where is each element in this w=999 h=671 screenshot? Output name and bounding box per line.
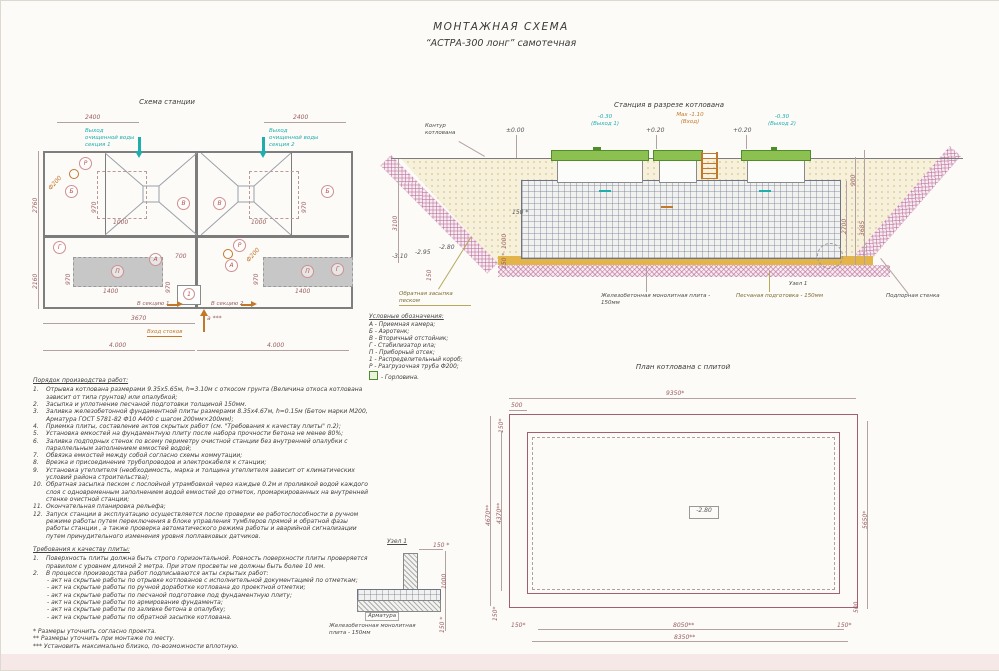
quality-item: 2.В процессе производства работ подписыв… — [33, 570, 369, 577]
item-text: Установка емкостей на фундаментную плиту… — [46, 430, 343, 437]
dim-label: 1400 — [103, 288, 118, 295]
act-item: - акт на скрытые работы по ручной дорабо… — [47, 584, 369, 591]
chamber-label: А — [225, 259, 238, 272]
station-plan-title: Схема станции — [107, 98, 227, 106]
item-text: Запуск станции в эксплуатацию осуществля… — [46, 511, 369, 540]
work-order-item: 8.Врезка и присоединение трубопроводов и… — [33, 459, 369, 466]
dim-line — [509, 410, 527, 411]
dim-label: 970 — [165, 282, 172, 293]
dim-label: 2160 — [32, 274, 39, 289]
dim-label: 3670 — [131, 315, 146, 322]
outlet-label: Выход очищенной воды секция 1 — [85, 128, 137, 149]
work-order-title: Порядок производства работ: — [33, 377, 369, 384]
discharge-pipe-icon — [69, 169, 79, 179]
item-number: 11. — [33, 503, 46, 510]
slab-label: Железобетонная монолитная плита - 150мм — [601, 293, 713, 307]
outlet-pipe-mark — [599, 190, 611, 192]
work-order-item: 6.Заливка подпорных стенок по всему пери… — [33, 438, 369, 453]
item-number: 7. — [33, 452, 46, 459]
chamber-label: Б — [321, 185, 334, 198]
dim-line — [57, 122, 139, 123]
dim-label: 2400 — [293, 114, 308, 121]
item-number: 2. — [33, 401, 46, 408]
dim-label: 970 — [65, 274, 72, 285]
item-number: 3. — [33, 408, 46, 423]
outlet-arrow-head — [259, 151, 267, 158]
item-text: Приемка плиты, составление актов скрытых… — [46, 423, 341, 430]
item-text: Засыпка и уплотнение песчаной подготовки… — [46, 401, 247, 408]
elevation-sublabel: (Вход) — [681, 119, 700, 125]
item-number: 2. — [33, 570, 46, 577]
dim-line — [264, 122, 346, 123]
item-number: 12. — [33, 511, 46, 540]
leader-line — [516, 135, 517, 158]
quality-acts: - акт на скрытые работы по отрывке котло… — [33, 577, 369, 621]
outlet-arrow — [138, 137, 141, 151]
pit-bottom-outline — [532, 437, 835, 590]
footnote: ** Размеры уточнить при монтаже по месту… — [33, 635, 369, 642]
dim-label: 1400 — [295, 288, 310, 295]
node1-callout-label: Узел 1 — [789, 281, 807, 288]
work-order-item: 7.Обвязка емкостей между собой согласно … — [33, 452, 369, 459]
flow-arrow-head — [251, 301, 257, 307]
dim-label: 900 — [850, 175, 857, 186]
to-section-label: В секцию 2 — [211, 301, 243, 308]
dim-label: 4.000 — [267, 342, 284, 349]
inlet-pipe-mark — [661, 206, 673, 208]
outlet-arrow — [262, 137, 265, 151]
footnote: * Размеры уточнить согласно проекта. — [33, 628, 369, 635]
elevation-label: -0.30 — [775, 114, 789, 120]
item-number: 9. — [33, 467, 46, 482]
elevation-label: -2.80 — [439, 244, 455, 251]
dim-label: 150 * — [501, 253, 508, 269]
elevation-label: ±0.00 — [506, 127, 524, 134]
quality-title: Требования к качеству плиты: — [33, 546, 369, 553]
guide-rect — [249, 171, 299, 219]
elevation-label: +0.20 — [646, 127, 664, 134]
station-body — [521, 180, 841, 259]
dim-line — [538, 629, 844, 630]
dim-line — [864, 150, 865, 265]
dim-label: 970 — [91, 202, 98, 213]
chamber-label: Б — [65, 185, 78, 198]
leader-line — [459, 141, 485, 157]
dim-line — [419, 549, 443, 550]
pit-contour-label: Контур котлована — [425, 123, 470, 137]
elevation-sublabel: (Выход 1) — [591, 121, 619, 127]
act-item: - акт на скрытые работы по заливке бетон… — [47, 606, 369, 613]
dim-label: 2700 — [841, 219, 848, 234]
footnotes: * Размеры уточнить согласно проекта. ** … — [33, 628, 369, 650]
riser — [557, 158, 643, 183]
chamber-label: А — [149, 253, 162, 266]
item-number: 6. — [33, 438, 46, 453]
item-text: Поверхность плиты должна быть строго гор… — [46, 555, 369, 570]
vent-tick — [771, 147, 777, 151]
dim-label: 150 * — [512, 209, 528, 216]
chamber-label: Р — [233, 239, 246, 252]
dim-label: 1000 — [441, 574, 448, 589]
outlet-arrow-head — [135, 151, 143, 158]
item-number: 4. — [33, 423, 46, 430]
dim-label: 1000 — [251, 219, 266, 226]
dim-label: а *** — [207, 315, 222, 322]
elevation-sublabel: (Выход 2) — [768, 121, 796, 127]
dim-label: 8050** — [673, 622, 694, 629]
to-section-label: В секцию 1 — [137, 301, 169, 308]
dim-line — [398, 159, 399, 263]
act-item: - акт на скрытые работы по обратной засы… — [47, 614, 369, 621]
elevation-label: +0.20 — [733, 127, 751, 134]
footnote: *** Установить максимально близко, по-во… — [33, 643, 369, 650]
dim-label: 150* — [837, 622, 851, 629]
vent-tick — [593, 147, 601, 151]
chamber-label: Р — [79, 157, 92, 170]
retaining-wall-section — [403, 553, 418, 591]
dim-label: 150 * — [433, 542, 449, 549]
dim-line — [197, 350, 349, 351]
item-text: В процессе производства работ подписываю… — [46, 570, 269, 577]
drawing-sheet: МОНТАЖНАЯ СХЕМА “АСТРА-300 лонг” самотеч… — [0, 0, 999, 671]
flow-arrow-head — [177, 301, 183, 307]
work-order-item: 11.Окончательная планировка рельефа; — [33, 503, 369, 510]
pit-elevation-box: -2.80 — [689, 506, 719, 519]
riser — [659, 158, 697, 183]
work-order-item: 9.Установка утеплителя (необходимость, м… — [33, 467, 369, 482]
node1-title: Узел 1 — [387, 538, 407, 546]
dim-label: 4670** — [485, 505, 492, 526]
item-text: Заливка железобетонной фундаментной плит… — [46, 408, 369, 423]
work-order-item: 3.Заливка железобетонной фундаментной пл… — [33, 408, 369, 423]
dim-line — [509, 398, 856, 399]
leader-line — [746, 135, 747, 149]
leader-line — [646, 267, 647, 292]
chamber-label: Г — [331, 263, 344, 276]
node1-callout-circle — [817, 243, 843, 269]
discharge-pipe-icon — [223, 249, 233, 259]
item-number: 8. — [33, 459, 46, 466]
legend-item-text: - Горловина. — [381, 375, 419, 381]
item-text: Установка утеплителя (необходимость, мар… — [46, 467, 369, 482]
work-order-item: 12.Запуск станции в эксплуатацию осущест… — [33, 511, 369, 540]
legend-title: Условные обозначения: — [369, 313, 444, 321]
work-order-item: 5.Установка емкостей на фундаментную пли… — [33, 430, 369, 437]
dim-line — [855, 157, 856, 265]
dim-label: 1000 — [113, 219, 128, 226]
dim-line — [532, 641, 848, 642]
sheet-subtitle: “АСТРА-300 лонг” самотечная — [351, 38, 651, 49]
chamber-label: В — [177, 197, 190, 210]
sand-bed-section — [357, 600, 441, 612]
distribution-box-label: 1 — [183, 288, 195, 300]
work-order-block: Порядок производства работ: 1.Отрывка ко… — [33, 377, 369, 650]
item-text: Отрывка котлована размерами 9.35х5.65м, … — [46, 386, 369, 401]
work-order-item: 2.Засыпка и уплотнение песчаной подготов… — [33, 401, 369, 408]
dim-label: 2760 — [32, 198, 39, 213]
wall-line — [43, 235, 349, 238]
elevation-label: -0.30 — [598, 114, 612, 120]
elevation-label: Max -1.10 — [676, 112, 703, 118]
item-text: Обратная засыпка песком с послойной утра… — [46, 481, 369, 503]
item-text: Врезка и присоединение трубопроводов и э… — [46, 459, 266, 466]
item-number: 10. — [33, 481, 46, 503]
dim-line — [38, 235, 39, 309]
rebar-label: Арматура — [365, 612, 399, 621]
inlet-label: Вход стоков — [147, 329, 182, 337]
legend-item: - Горловина. — [369, 371, 419, 382]
pit-plan-title: План котлована с плитой — [593, 363, 773, 371]
act-item: - акт на скрытые работы по армирование ф… — [47, 599, 369, 606]
node-slab-label: Железобетонная монолитная плита - 150мм — [329, 623, 417, 637]
chamber-label: П — [111, 265, 124, 278]
dim-label: 700 — [175, 253, 186, 260]
pit-elevation: -2.80 — [690, 507, 718, 514]
item-number: 5. — [33, 430, 46, 437]
cover-lid — [653, 150, 703, 161]
dim-line — [38, 151, 39, 235]
dim-label: 4370** — [496, 503, 503, 524]
outlet-label: Выход очищенной воды секция 2 — [269, 128, 321, 149]
dim-line — [43, 323, 195, 324]
cover-lid — [741, 150, 811, 161]
work-order-item: 4.Приемка плиты, составление актов скрыт… — [33, 423, 369, 430]
dim-label: 150 — [426, 270, 433, 281]
chamber-label: П — [301, 265, 314, 278]
dim-label: 4.000 — [109, 342, 126, 349]
act-item: - акт на скрытые работы по песчаной подг… — [47, 592, 369, 599]
dim-label: 8350** — [674, 634, 695, 641]
work-order-item: 1.Отрывка котлована размерами 9.35х5.65м… — [33, 386, 369, 401]
item-text: Заливка подпорных стенок по всему периме… — [46, 438, 369, 453]
dim-label: 9350* — [666, 390, 684, 397]
chamber-label: В — [213, 197, 226, 210]
dim-label: 500 — [853, 602, 860, 613]
item-number: 1. — [33, 386, 46, 401]
guide-rect — [97, 171, 147, 219]
item-text: Обвязка емкостей между собой согласно сх… — [46, 452, 242, 459]
flow-arrow — [241, 304, 251, 306]
dim-label: 150 * — [439, 617, 446, 633]
item-number: 1. — [33, 555, 46, 570]
dim-label: 500 — [511, 402, 522, 409]
sand-bed-label: Песчаная подготовка - 150мм — [736, 293, 846, 300]
dim-label: 3685 — [859, 221, 866, 236]
retaining-wall-label: Подпорная стенка — [886, 293, 966, 300]
cover-lid — [551, 150, 649, 161]
dim-label: 150* — [511, 622, 525, 629]
dim-label: 3100 — [392, 216, 399, 231]
dim-label: 970 — [253, 274, 260, 285]
flow-arrow — [167, 304, 177, 306]
leader-line — [656, 135, 657, 149]
quality-item: 1.Поверхность плиты должна быть строго г… — [33, 555, 369, 570]
dim-label: 150* — [492, 607, 499, 621]
item-text: Окончательная планировка рельефа; — [46, 503, 166, 510]
section-title: Станция в разрезе котлована — [581, 101, 757, 109]
dim-label: 970 — [301, 202, 308, 213]
elevation-label: -2.95 — [415, 249, 431, 256]
sheet-title: МОНТАЖНАЯ СХЕМА — [351, 21, 651, 33]
ladder-icon — [701, 152, 718, 179]
dim-line — [43, 350, 195, 351]
leader-line — [769, 271, 770, 292]
backfill-label: Обратная засыпка песком — [399, 291, 471, 306]
dim-label: 5650* — [862, 511, 869, 529]
work-order-item: 10.Обратная засыпка песком с послойной у… — [33, 481, 369, 503]
dim-label: 1000 — [501, 234, 508, 249]
act-item: - акт на скрытые работы по отрывке котло… — [47, 577, 369, 584]
riser — [747, 158, 805, 183]
dim-label: 2400 — [85, 114, 100, 121]
sheet-edge — [1, 654, 999, 670]
elevation-label: -3.10 — [392, 253, 408, 260]
chamber-label: Г — [53, 241, 66, 254]
gorlovina-icon — [369, 371, 378, 380]
inlet-arrow — [203, 316, 205, 332]
outlet-pipe-mark — [759, 190, 771, 192]
